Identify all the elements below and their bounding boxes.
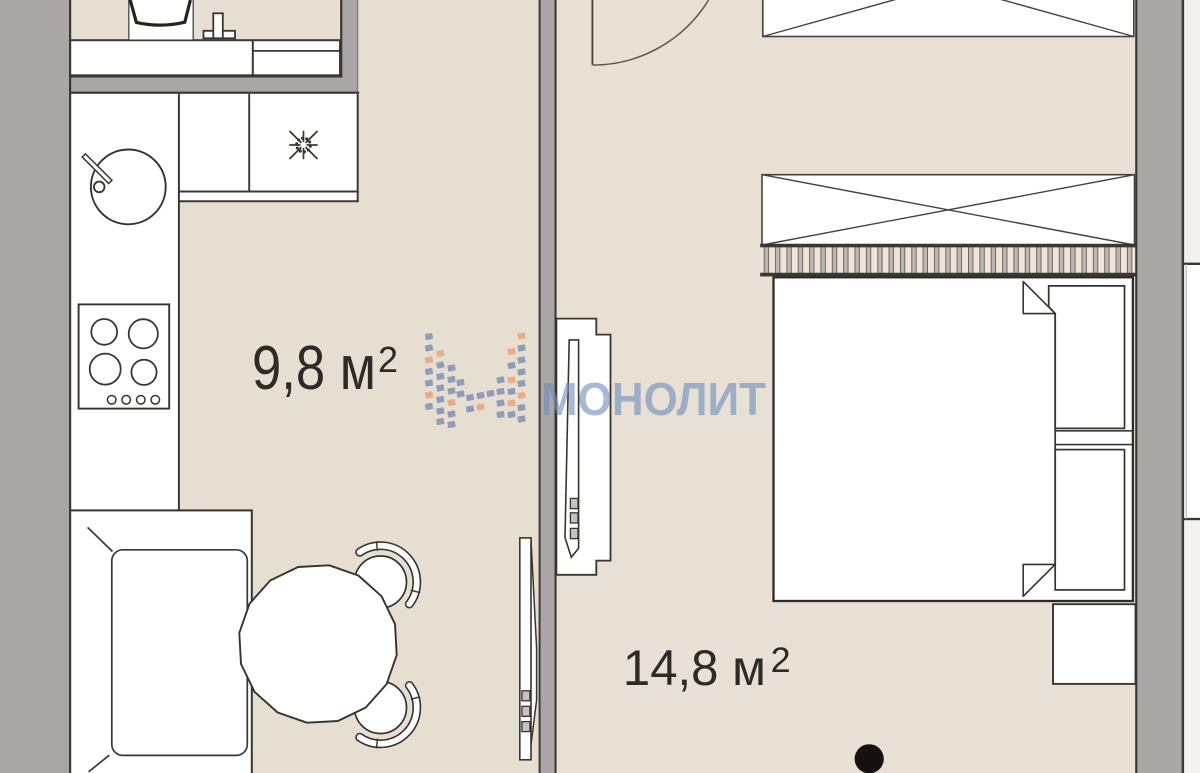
svg-text:2: 2 [771,641,791,680]
svg-text:2: 2 [378,339,398,380]
svg-text:14,8 м: 14,8 м [623,640,766,696]
svg-text:МОНОЛИТ: МОНОЛИТ [541,373,766,425]
svg-text:9,8 м: 9,8 м [252,334,376,403]
